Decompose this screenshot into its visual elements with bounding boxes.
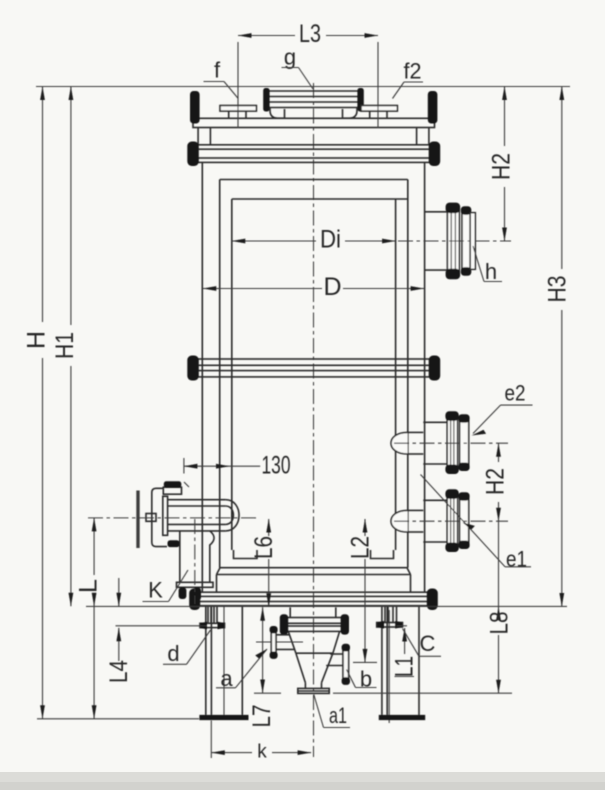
svg-text:g: g [284, 45, 296, 70]
svg-text:H: H [23, 331, 51, 349]
svg-text:L8: L8 [486, 612, 514, 635]
svg-text:H1: H1 [51, 332, 79, 359]
svg-text:L6: L6 [250, 536, 278, 559]
svg-text:H2: H2 [488, 153, 516, 180]
svg-text:k: k [257, 742, 267, 763]
svg-text:h: h [485, 259, 497, 284]
svg-text:L: L [75, 579, 103, 593]
svg-text:f: f [214, 58, 221, 83]
svg-text:K: K [148, 578, 163, 603]
svg-text:L4: L4 [105, 660, 133, 683]
svg-text:f2: f2 [404, 59, 422, 84]
svg-text:e2: e2 [505, 381, 526, 406]
svg-text:130: 130 [262, 452, 291, 480]
svg-text:L2: L2 [347, 536, 375, 559]
svg-text:L7: L7 [248, 705, 276, 728]
svg-text:C: C [420, 631, 436, 656]
svg-text:H2: H2 [482, 468, 510, 495]
svg-text:L3: L3 [299, 20, 321, 48]
svg-text:D: D [323, 273, 341, 301]
svg-text:H3: H3 [544, 276, 572, 303]
svg-text:L1: L1 [391, 656, 419, 677]
svg-text:Di: Di [320, 226, 341, 254]
svg-text:e1: e1 [506, 547, 527, 572]
svg-text:a1: a1 [329, 703, 347, 728]
svg-text:d: d [167, 641, 179, 666]
